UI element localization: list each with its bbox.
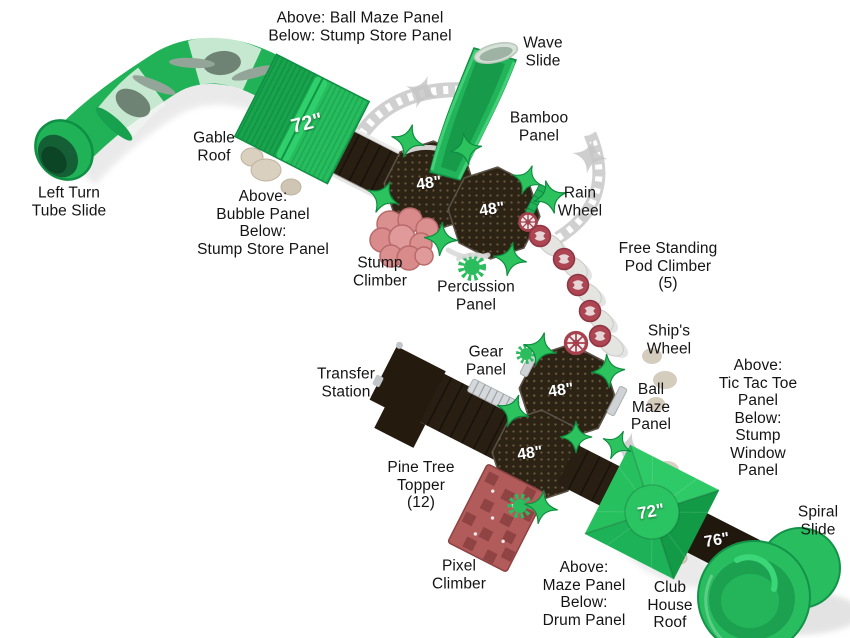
label-stump-climber: Stump Climber — [353, 255, 407, 290]
label-wave-slide: Wave Slide — [523, 35, 562, 70]
label-free-standing-pod-climber: Free Standing Pod Climber (5) — [619, 240, 718, 293]
label-club-house-roof: Club House Roof — [647, 579, 692, 632]
height-marker-deck-a: 48" — [415, 173, 443, 194]
label-transfer-station: Transfer Station — [317, 366, 375, 401]
height-marker-deck-c: 48" — [547, 380, 575, 401]
label-ball-maze-panel: Ball Maze Panel — [631, 381, 671, 434]
label-bubble-stump-store-note: Above: Bubble Panel Below: Stump Store P… — [197, 188, 329, 258]
label-tic-tac-toe-stump-window-note: Above: Tic Tac Toe Panel Below: Stump Wi… — [712, 357, 804, 480]
ships-wheel — [566, 333, 587, 354]
height-marker-deck-d: 48" — [516, 443, 544, 464]
label-pine-tree-topper: Pine Tree Topper (12) — [387, 459, 454, 512]
label-left-turn-tube-slide: Left Turn Tube Slide — [32, 185, 107, 220]
label-rain-wheel: Rain Wheel — [558, 185, 602, 220]
label-gable-roof: Gable Roof — [193, 130, 235, 165]
label-pixel-climber: Pixel Climber — [432, 558, 486, 593]
label-ball-maze-stump-store-note: Above: Ball Maze Panel Below: Stump Stor… — [268, 10, 451, 45]
label-ships-wheel: Ship's Wheel — [647, 323, 691, 358]
label-bamboo-panel: Bamboo Panel — [510, 110, 568, 145]
label-gear-panel: Gear Panel — [466, 344, 506, 379]
wave-slide — [430, 39, 520, 180]
label-percussion-panel: Percussion Panel — [437, 279, 515, 314]
label-spiral-slide: Spiral Slide — [798, 504, 838, 539]
label-maze-drum-note: Above: Maze Panel Below: Drum Panel — [543, 559, 626, 629]
height-marker-deck-b: 48" — [478, 199, 506, 220]
playground-diagram: Above: Ball Maze Panel Below: Stump Stor… — [0, 0, 850, 638]
